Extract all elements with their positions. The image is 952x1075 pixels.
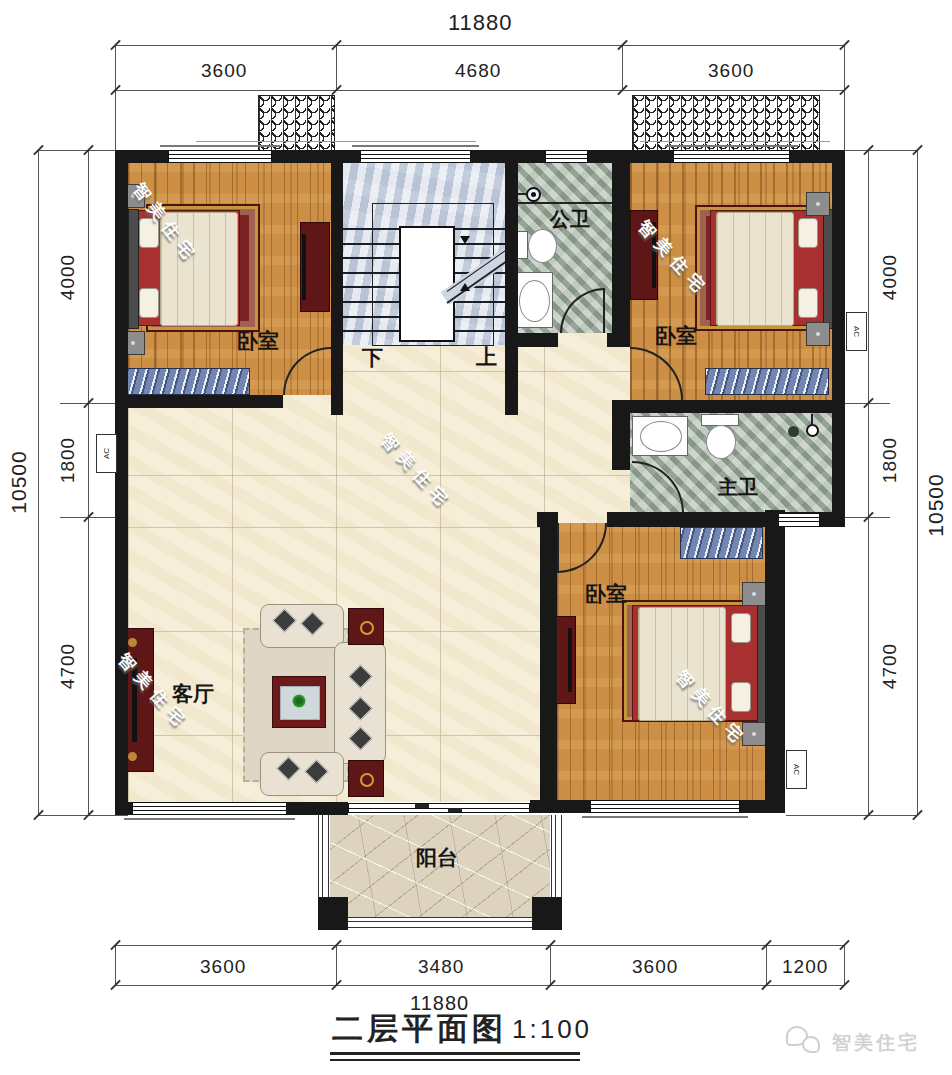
dim-line <box>917 150 918 815</box>
sink-basin <box>519 280 550 322</box>
wall-left <box>115 150 128 815</box>
eave-line <box>640 141 830 142</box>
eave-line <box>196 141 476 142</box>
stair-arrow-up <box>460 283 470 291</box>
window-sill <box>160 145 280 147</box>
bedroom2-window <box>673 150 790 163</box>
dim-left-seg3: 4700 <box>57 643 79 689</box>
dim-line <box>88 150 89 815</box>
title-underline <box>330 1059 580 1061</box>
bedroom3-pillow <box>731 682 751 712</box>
stair-treads-left <box>343 228 399 345</box>
logo-text: 智美住宅 <box>832 1030 920 1056</box>
bedroom1-pillow <box>139 288 159 318</box>
dim-right-seg1: 4000 <box>879 254 901 300</box>
ac-label: AC <box>102 448 111 459</box>
bedroom3-window <box>590 800 740 813</box>
dim-line <box>38 150 39 815</box>
stairwell-window <box>360 150 471 163</box>
wall-pubbath-bottom-l <box>505 333 558 347</box>
dim-top-total: 11880 <box>448 10 513 36</box>
logo-bubble-icon-small <box>802 1036 820 1053</box>
staircase <box>343 163 505 345</box>
plant-icon <box>292 694 306 708</box>
shower-head-dot <box>531 192 536 197</box>
dim-line <box>336 945 337 985</box>
dim-top-seg1: 3600 <box>201 60 247 82</box>
wall-bedroom2-bottom <box>612 400 845 413</box>
sofa-side-table <box>348 760 384 797</box>
wall-right-upper <box>832 150 845 527</box>
dim-line <box>115 90 845 91</box>
dim-left-total: 10500 <box>7 450 31 513</box>
dim-line <box>115 945 845 946</box>
ac-unit-right-bedroom2: AC <box>846 312 867 351</box>
toilet-bowl <box>706 425 736 459</box>
living-window <box>132 802 287 815</box>
bedroom2-nightstand <box>806 192 830 216</box>
dim-left-seg2: 1800 <box>57 437 79 483</box>
wall-stair-pubbath <box>505 163 518 415</box>
ac-unit-left: AC <box>96 434 117 473</box>
dim-left-seg1: 4000 <box>57 254 79 300</box>
dim-bottom-seg3: 3600 <box>632 956 678 978</box>
balcony-railing-bottom <box>318 917 562 928</box>
bedroom3-nightstand <box>742 582 766 606</box>
window-sill <box>124 818 295 820</box>
drawing-scale: 1:100 <box>512 1014 592 1045</box>
toilet-tank <box>517 231 528 259</box>
dim-bottom-seg4: 1200 <box>782 956 828 978</box>
dim-line <box>38 815 128 816</box>
sofa-side-table <box>348 608 384 645</box>
bedroom3-tv-screen <box>568 628 572 692</box>
bedroom2-pillow <box>798 288 818 318</box>
dim-bottom-seg1: 3600 <box>200 956 246 978</box>
title-underline <box>330 1052 580 1055</box>
balcony-column <box>532 897 562 930</box>
bedroom2-nightstand <box>806 322 830 346</box>
shower-partition-line <box>518 202 612 204</box>
drawing-title: 二层平面图 <box>332 1008 507 1050</box>
living-tv-knob <box>128 638 137 647</box>
master-bath-window <box>778 513 820 527</box>
public-bath-label: 公卫 <box>550 206 590 233</box>
sink-basin <box>640 421 682 452</box>
wall-bedroom3-right <box>765 510 785 813</box>
dim-line <box>115 45 845 46</box>
bedroom1-window <box>168 150 272 163</box>
dim-right-seg2: 1800 <box>879 437 901 483</box>
master-bath-label: 主卫 <box>718 474 758 501</box>
bedroom2-quilt <box>716 212 794 326</box>
dim-top-seg2: 4680 <box>455 60 501 82</box>
dim-line <box>115 945 116 985</box>
ac-label: AC <box>792 764 801 775</box>
balcony-label: 阳台 <box>416 844 458 872</box>
wall-bedroom1-right <box>331 163 343 415</box>
stair-arrow-down <box>460 236 470 244</box>
bedroom2-pillow <box>798 218 818 248</box>
living-tv-knob <box>128 752 137 761</box>
toilet-bowl <box>528 229 557 263</box>
window-sill <box>582 816 748 818</box>
window-sill <box>352 145 479 147</box>
floor-drain-icon <box>788 426 799 437</box>
bedroom3-pillow <box>731 613 751 643</box>
ac-unit-right-bedroom3: AC <box>786 750 807 789</box>
bedroom1-label: 卧室 <box>237 327 279 355</box>
dim-right-total: 10500 <box>924 473 948 536</box>
wall-bedroom3-left <box>540 512 557 802</box>
wall-pubbath-bedroom2 <box>612 163 630 347</box>
slider-handle <box>448 808 462 812</box>
dim-line <box>115 45 116 150</box>
floor-plan-page: 11880 3600 4680 3600 10500 4000 1800 470… <box>0 0 952 1075</box>
bedroom3-label: 卧室 <box>585 580 627 608</box>
bedroom1-headboard <box>128 209 139 329</box>
window-sill <box>665 145 798 147</box>
stair-void <box>399 226 455 342</box>
dim-bottom-seg2: 3480 <box>418 956 464 978</box>
public-bath-window <box>545 150 588 163</box>
dim-line <box>844 45 845 150</box>
dim-line <box>868 150 869 815</box>
bedroom3-wardrobe <box>680 527 763 559</box>
dim-right-seg3: 4700 <box>879 643 901 689</box>
faucet-stem <box>811 414 813 426</box>
bedroom2-label: 卧室 <box>655 322 697 350</box>
stairs-up-label: 上 <box>476 343 497 371</box>
bedroom1-wardrobe <box>124 368 250 395</box>
dim-line <box>786 815 918 816</box>
sofa-bottom-seat <box>260 752 344 796</box>
dim-line <box>115 985 845 986</box>
dim-line <box>550 945 551 985</box>
dim-top-seg3: 3600 <box>708 60 754 82</box>
dim-line <box>766 945 767 985</box>
bedroom2-wardrobe <box>705 368 829 395</box>
stairs-down-label: 下 <box>362 344 383 372</box>
dim-line <box>844 945 845 985</box>
ac-label: AC <box>852 326 861 337</box>
balcony-column <box>318 897 348 930</box>
wall-bedroom1-bottom <box>128 395 283 408</box>
slider-handle <box>415 804 429 808</box>
dim-line <box>622 45 623 90</box>
dim-line <box>336 45 337 90</box>
balcony-sliding-door <box>348 803 530 813</box>
bedroom1-tv-screen <box>302 234 306 300</box>
